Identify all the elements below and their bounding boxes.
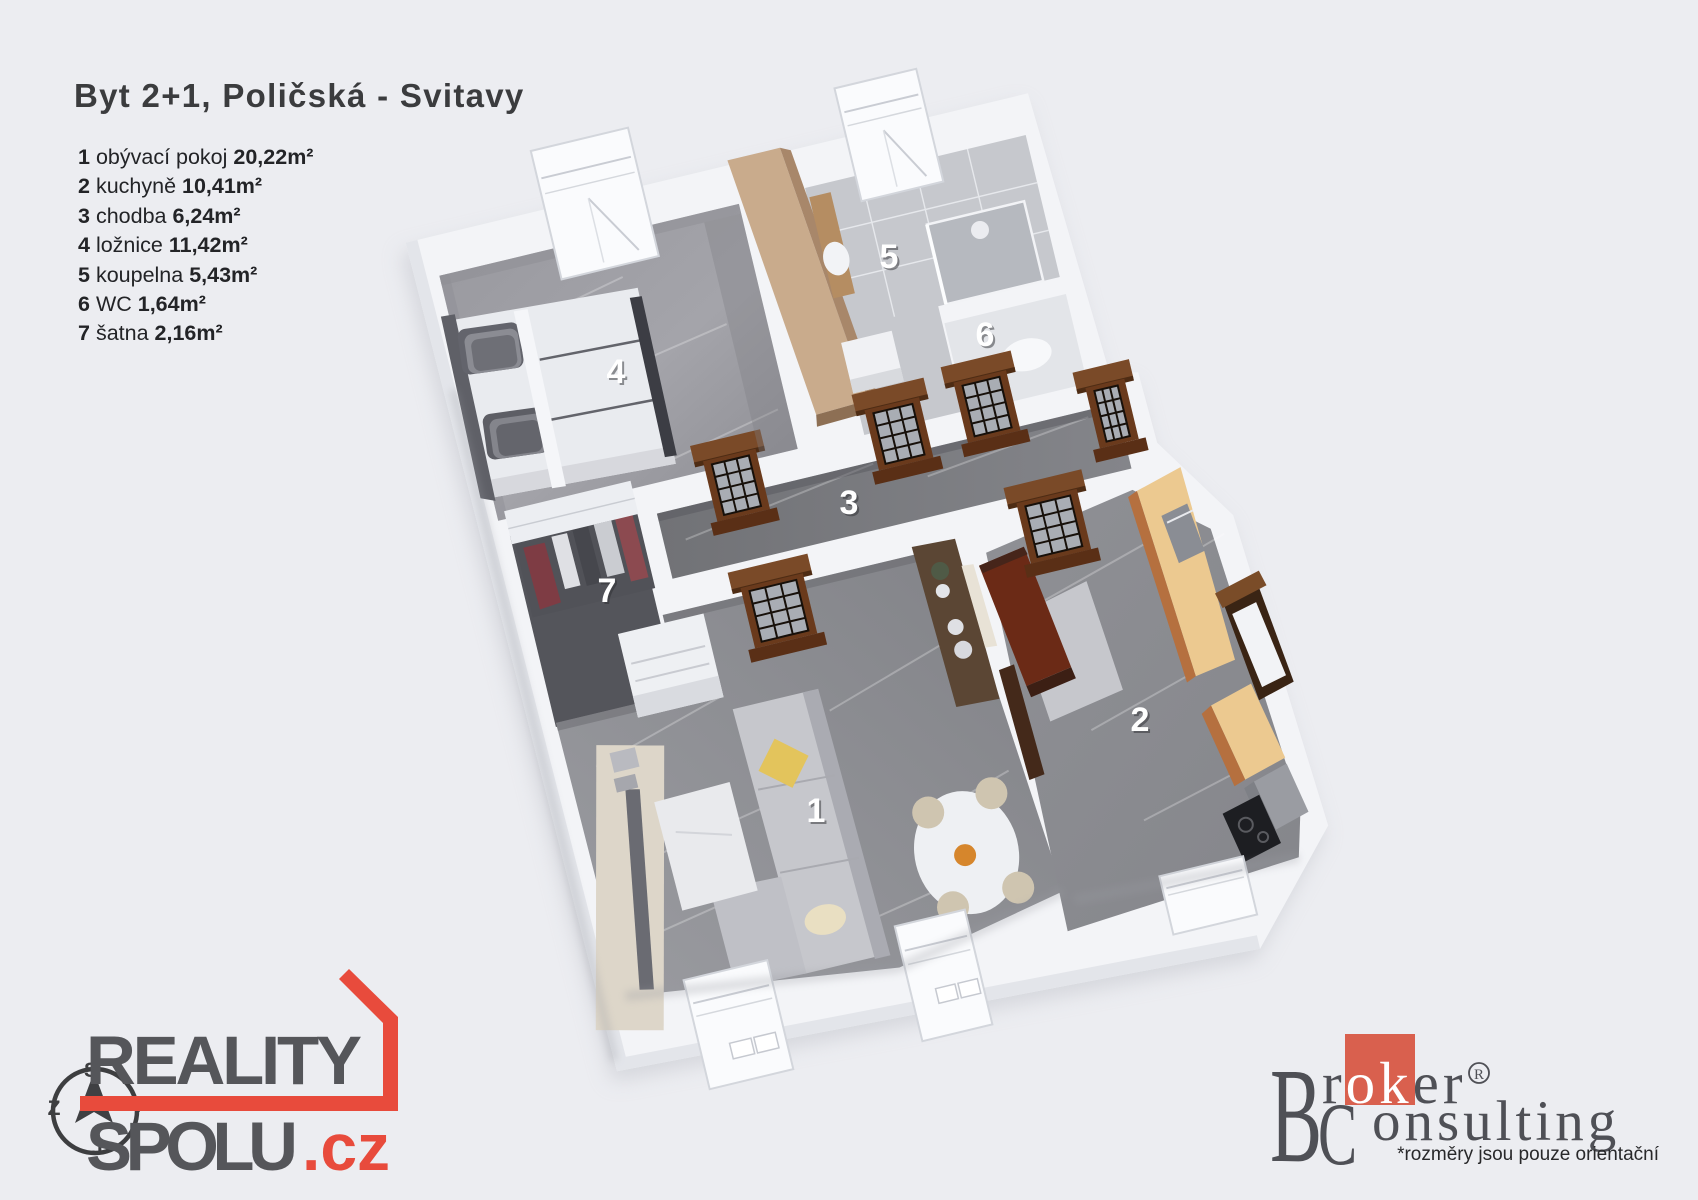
svg-text:C: C bbox=[1318, 1086, 1357, 1184]
svg-text:B: B bbox=[1270, 1040, 1322, 1191]
svg-text:*rozměry jsou pouze orientační: *rozměry jsou pouze orientační bbox=[1397, 1144, 1660, 1165]
svg-text:R: R bbox=[1474, 1067, 1484, 1083]
